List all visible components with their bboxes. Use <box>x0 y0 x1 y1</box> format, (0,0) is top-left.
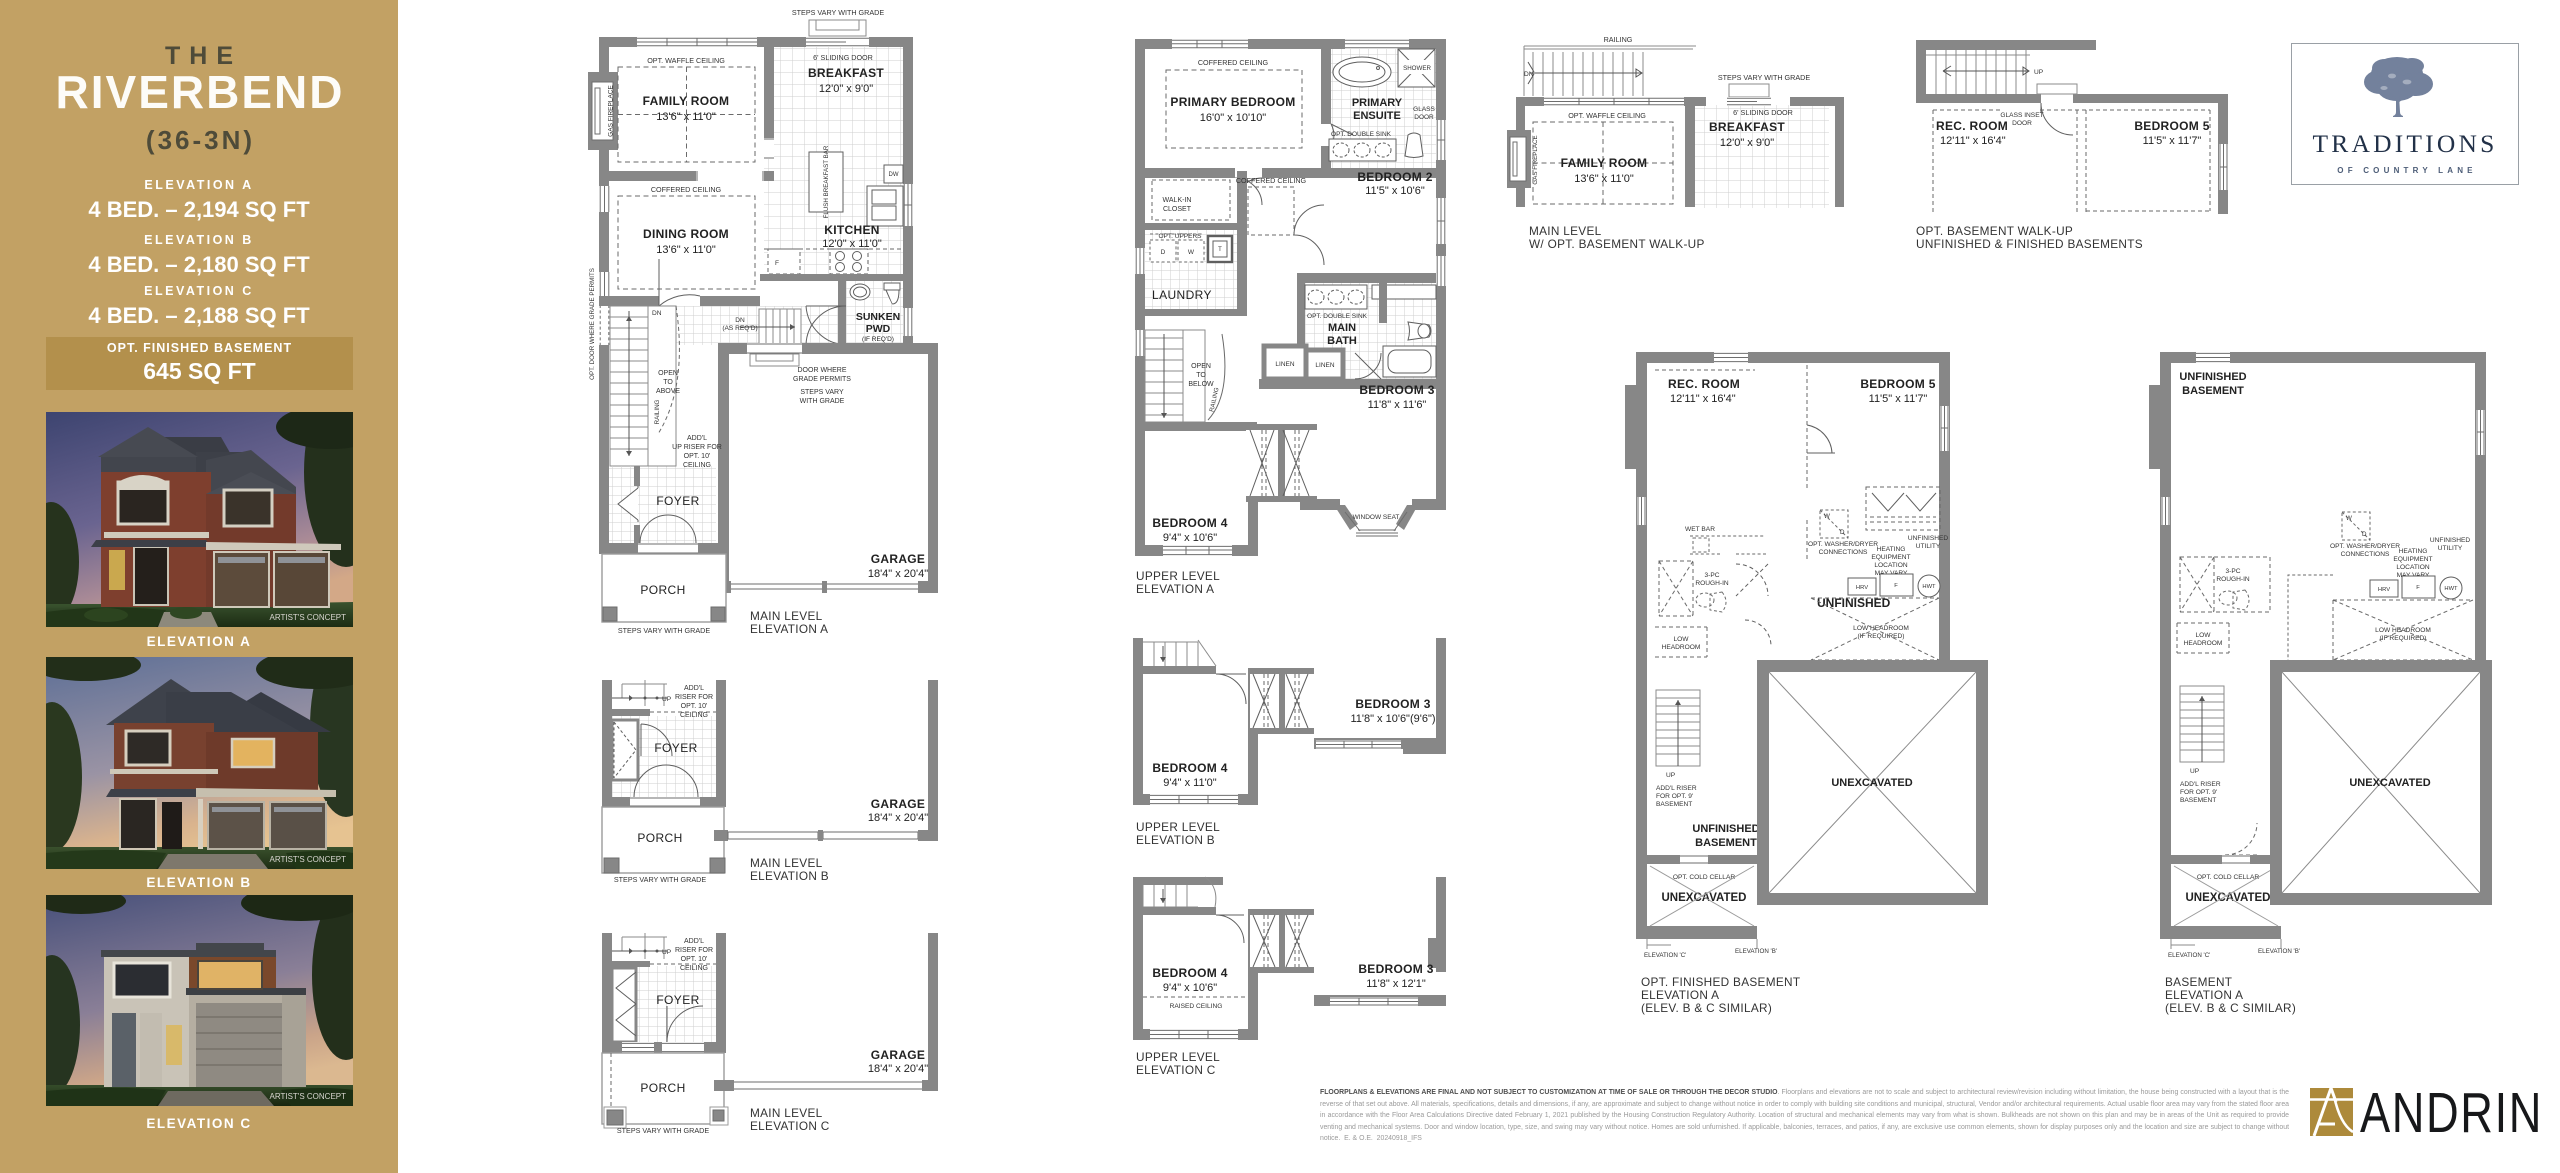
svg-text:FOYER: FOYER <box>656 993 699 1007</box>
svg-text:12'11" x 16'4": 12'11" x 16'4" <box>1940 135 2006 147</box>
svg-text:LINEN: LINEN <box>1275 361 1294 368</box>
svg-text:UNEXCAVATED: UNEXCAVATED <box>1831 777 1912 789</box>
svg-text:TRADITIONS: TRADITIONS <box>2313 129 2498 158</box>
svg-text:REC. ROOM: REC. ROOM <box>1668 377 1740 391</box>
svg-text:ADD'L: ADD'L <box>684 685 704 692</box>
svg-text:ENSUITE: ENSUITE <box>1353 110 1401 122</box>
svg-text:GLASS: GLASS <box>1413 106 1435 113</box>
svg-text:UTILITY: UTILITY <box>1916 543 1941 550</box>
svg-text:CEILING: CEILING <box>680 712 708 719</box>
svg-text:W: W <box>2346 515 2352 522</box>
svg-text:(ELEV. B & C SIMILAR): (ELEV. B & C SIMILAR) <box>2165 1001 2296 1015</box>
svg-text:RAISED CEILING: RAISED CEILING <box>1170 1003 1223 1010</box>
svg-text:(IF REQUIRED): (IF REQUIRED) <box>1858 633 1905 640</box>
svg-text:12'0" x 11'0": 12'0" x 11'0" <box>822 238 882 250</box>
svg-text:9'4" x 10'6": 9'4" x 10'6" <box>1163 982 1217 994</box>
svg-text:LINEN: LINEN <box>1315 362 1334 369</box>
svg-text:UP: UP <box>2034 69 2044 76</box>
svg-text:ELEVATION 'C': ELEVATION 'C' <box>2168 952 2210 959</box>
svg-text:STEPS VARY: STEPS VARY <box>800 389 844 396</box>
svg-text:BATH: BATH <box>1327 335 1357 347</box>
svg-text:(IF REQ'D): (IF REQ'D) <box>862 336 894 343</box>
svg-text:ELEVATION C: ELEVATION C <box>1136 1063 1216 1077</box>
svg-text:LOW: LOW <box>2195 632 2211 639</box>
svg-text:13'6" x 11'0": 13'6" x 11'0" <box>1574 173 1634 185</box>
svg-text:13'6" x 11'0": 13'6" x 11'0" <box>656 244 716 256</box>
svg-text:12'0" x 9'0": 12'0" x 9'0" <box>819 83 873 95</box>
svg-text:BEDROOM 5: BEDROOM 5 <box>2134 119 2209 133</box>
svg-text:11'5" x 10'6": 11'5" x 10'6" <box>1365 185 1425 197</box>
svg-text:T: T <box>1218 247 1222 253</box>
svg-text:MAIN LEVEL: MAIN LEVEL <box>1529 224 1602 238</box>
svg-text:HRV: HRV <box>1856 585 1868 591</box>
svg-text:STEPS VARY WITH GRADE: STEPS VARY WITH GRADE <box>617 1126 709 1135</box>
svg-text:FAMILY ROOM: FAMILY ROOM <box>1561 156 1648 170</box>
svg-text:BEDROOM 4: BEDROOM 4 <box>1152 516 1227 530</box>
svg-text:11'5" x 11'7": 11'5" x 11'7" <box>1869 393 1928 405</box>
svg-text:ADD'L: ADD'L <box>684 938 704 945</box>
svg-text:ELEVATION 'B': ELEVATION 'B' <box>1735 948 1777 955</box>
svg-text:ELEVATION A: ELEVATION A <box>2165 988 2243 1002</box>
svg-text:OPEN: OPEN <box>1191 363 1211 370</box>
svg-text:(AS REQ'D): (AS REQ'D) <box>722 325 757 332</box>
svg-text:6' SLIDING DOOR: 6' SLIDING DOOR <box>813 53 873 62</box>
svg-text:BEDROOM 4: BEDROOM 4 <box>1152 966 1227 980</box>
svg-text:ELEVATION B: ELEVATION B <box>750 869 829 883</box>
svg-text:9'4" x 11'0": 9'4" x 11'0" <box>1163 777 1216 789</box>
svg-text:11'8" x 10'6"(9'6"): 11'8" x 10'6"(9'6") <box>1350 713 1435 725</box>
svg-text:GARAGE: GARAGE <box>871 552 925 566</box>
svg-text:RISER FOR: RISER FOR <box>675 947 713 954</box>
svg-text:11'8" x 12'1": 11'8" x 12'1" <box>1366 978 1426 990</box>
svg-text:CONNECTIONS: CONNECTIONS <box>2341 551 2390 558</box>
svg-text:HEADROOM: HEADROOM <box>1662 644 1701 651</box>
svg-text:OPT. WAFFLE CEILING: OPT. WAFFLE CEILING <box>1568 111 1646 120</box>
svg-text:FLUSH BREAKFAST BAR: FLUSH BREAKFAST BAR <box>823 145 830 218</box>
svg-text:DN: DN <box>652 310 662 317</box>
svg-text:UNFINISHED: UNFINISHED <box>1692 823 1759 835</box>
svg-text:UP: UP <box>662 696 672 703</box>
svg-text:UP: UP <box>662 949 672 956</box>
svg-text:BASEMENT: BASEMENT <box>2180 797 2216 804</box>
svg-text:BEDROOM 2: BEDROOM 2 <box>1357 170 1432 184</box>
svg-text:PORCH: PORCH <box>640 583 685 597</box>
svg-text:OPT. DOOR WHERE GRADE PERMITS: OPT. DOOR WHERE GRADE PERMITS <box>589 268 596 380</box>
svg-text:UNFINISHED: UNFINISHED <box>1908 535 1949 542</box>
svg-text:OPT. FINISHED BASEMENT: OPT. FINISHED BASEMENT <box>1641 975 1800 989</box>
svg-text:OPT. WASHER/DRYER: OPT. WASHER/DRYER <box>2330 543 2400 550</box>
svg-text:18'4" x 20'4": 18'4" x 20'4" <box>868 1063 928 1075</box>
svg-text:LOCATION: LOCATION <box>1874 562 1907 569</box>
svg-text:BASEMENT: BASEMENT <box>2165 975 2232 989</box>
svg-text:CLOSET: CLOSET <box>1163 206 1192 213</box>
svg-text:RISER FOR: RISER FOR <box>675 694 713 701</box>
svg-text:F: F <box>1894 583 1898 589</box>
svg-text:F: F <box>2416 585 2420 591</box>
svg-text:LOW: LOW <box>1673 636 1689 643</box>
svg-text:ELEVATION A: ELEVATION A <box>1641 988 1719 1002</box>
svg-text:BEDROOM 3: BEDROOM 3 <box>1355 697 1430 711</box>
svg-text:18'4" x 20'4": 18'4" x 20'4" <box>868 812 928 824</box>
svg-text:DOOR: DOOR <box>2012 120 2032 127</box>
svg-text:HRV: HRV <box>2378 587 2390 593</box>
svg-text:FAMILY ROOM: FAMILY ROOM <box>643 94 730 108</box>
svg-text:EQUIPMENT: EQUIPMENT <box>2393 556 2432 563</box>
svg-text:3-PC: 3-PC <box>2225 568 2240 575</box>
svg-text:FOR OPT. 9': FOR OPT. 9' <box>1656 793 1693 800</box>
svg-text:LOCATION: LOCATION <box>2396 564 2429 571</box>
svg-text:DN: DN <box>1524 71 1534 78</box>
svg-text:BREAKFAST: BREAKFAST <box>1709 120 1785 134</box>
svg-text:GAS FIREPLACE: GAS FIREPLACE <box>608 85 615 137</box>
svg-text:ADD'L: ADD'L <box>687 435 707 442</box>
svg-text:18'4" x 20'4": 18'4" x 20'4" <box>868 568 928 580</box>
svg-text:COFFERED CEILING: COFFERED CEILING <box>1236 176 1307 185</box>
svg-text:STEPS VARY WITH GRADE: STEPS VARY WITH GRADE <box>1718 73 1810 82</box>
svg-text:KITCHEN: KITCHEN <box>824 223 879 237</box>
svg-text:W: W <box>1824 513 1830 520</box>
svg-text:SUNKEN: SUNKEN <box>856 311 900 323</box>
svg-text:FOR OPT. 9': FOR OPT. 9' <box>2180 789 2217 796</box>
svg-text:BREAKFAST: BREAKFAST <box>808 66 884 80</box>
svg-text:(ELEV. B & C SIMILAR): (ELEV. B & C SIMILAR) <box>1641 1001 1772 1015</box>
svg-text:OPT. 10': OPT. 10' <box>684 453 711 460</box>
svg-text:BEDROOM 3: BEDROOM 3 <box>1358 962 1433 976</box>
svg-text:UNFINISHED: UNFINISHED <box>2179 371 2246 383</box>
svg-text:RAILING: RAILING <box>1209 387 1221 413</box>
svg-text:D: D <box>1161 249 1166 256</box>
svg-text:PORCH: PORCH <box>637 831 682 845</box>
svg-text:UPPER LEVEL: UPPER LEVEL <box>1136 1050 1220 1064</box>
svg-text:PRIMARY: PRIMARY <box>1352 97 1403 109</box>
svg-text:RAILING: RAILING <box>654 399 661 424</box>
svg-text:F: F <box>775 260 779 267</box>
svg-text:OPT. DOUBLE SINK: OPT. DOUBLE SINK <box>1307 313 1368 320</box>
svg-text:UNEXCAVATED: UNEXCAVATED <box>2349 777 2430 789</box>
svg-text:OF COUNTRY LANE: OF COUNTRY LANE <box>2337 166 2476 175</box>
svg-text:HEATING: HEATING <box>2399 548 2428 555</box>
svg-text:ELEVATION 'B': ELEVATION 'B' <box>2258 948 2300 955</box>
svg-text:REC. ROOM: REC. ROOM <box>1936 119 2008 133</box>
svg-text:DW: DW <box>889 172 899 178</box>
svg-text:CEILING: CEILING <box>680 965 708 972</box>
svg-text:PWD: PWD <box>866 323 891 335</box>
svg-text:BEDROOM 5: BEDROOM 5 <box>1860 377 1935 391</box>
svg-text:EQUIPMENT: EQUIPMENT <box>1871 554 1910 561</box>
svg-text:UP: UP <box>2190 768 2200 775</box>
svg-text:OPT. WAFFLE CEILING: OPT. WAFFLE CEILING <box>647 56 725 65</box>
svg-text:OPEN: OPEN <box>658 370 678 377</box>
svg-text:ABOVE: ABOVE <box>656 388 680 395</box>
svg-text:CEILING: CEILING <box>683 462 711 469</box>
svg-text:UNEXCAVATED: UNEXCAVATED <box>1662 892 1747 904</box>
svg-text:ROUGH-IN: ROUGH-IN <box>1695 580 1729 587</box>
svg-text:WALK-IN: WALK-IN <box>1163 197 1192 204</box>
svg-text:OPT. 10': OPT. 10' <box>681 703 708 710</box>
svg-text:MAIN LEVEL: MAIN LEVEL <box>750 856 823 870</box>
svg-text:UNEXCAVATED: UNEXCAVATED <box>2186 892 2271 904</box>
svg-text:ELEVATION A: ELEVATION A <box>1136 582 1214 596</box>
svg-text:DOOR WHERE: DOOR WHERE <box>798 367 847 374</box>
svg-text:DOOR: DOOR <box>1414 114 1434 121</box>
svg-text:OPT. COLD CELLAR: OPT. COLD CELLAR <box>1673 874 1736 881</box>
svg-text:MAIN: MAIN <box>1328 322 1356 334</box>
svg-text:UPPER LEVEL: UPPER LEVEL <box>1136 569 1220 583</box>
svg-text:11'8" x 11'6": 11'8" x 11'6" <box>1368 399 1427 411</box>
svg-text:ELEVATION 'C': ELEVATION 'C' <box>1644 952 1686 959</box>
svg-text:11'5" x 11'7": 11'5" x 11'7" <box>2143 135 2202 147</box>
svg-text:12'0" x 9'0": 12'0" x 9'0" <box>1720 137 1774 149</box>
svg-text:HEATING: HEATING <box>1877 546 1906 553</box>
svg-text:BASEMENT: BASEMENT <box>2182 385 2244 397</box>
svg-text:D: D <box>2362 531 2367 538</box>
svg-text:WITH GRADE: WITH GRADE <box>800 398 845 405</box>
svg-text:HWT: HWT <box>1922 584 1936 590</box>
svg-text:TO: TO <box>663 379 673 386</box>
svg-text:GARAGE: GARAGE <box>871 1048 925 1062</box>
svg-text:BASEMENT: BASEMENT <box>1695 837 1757 849</box>
svg-text:GAS FIREPLACE: GAS FIREPLACE <box>1532 135 1539 184</box>
svg-text:PRIMARY BEDROOM: PRIMARY BEDROOM <box>1170 95 1295 109</box>
svg-text:D: D <box>1840 529 1845 536</box>
svg-text:UP: UP <box>1666 772 1676 779</box>
svg-text:12'11" x 16'4": 12'11" x 16'4" <box>1670 393 1736 405</box>
svg-text:OPT. BASEMENT WALK-UP: OPT. BASEMENT WALK-UP <box>1916 224 2073 238</box>
svg-text:DINING ROOM: DINING ROOM <box>643 227 729 241</box>
svg-text:UTILITY: UTILITY <box>2438 545 2463 552</box>
svg-text:ADD'L RISER: ADD'L RISER <box>1656 785 1697 792</box>
svg-text:ADD'L RISER: ADD'L RISER <box>2180 781 2221 788</box>
svg-text:(IF REQUIRED): (IF REQUIRED) <box>2380 635 2427 642</box>
svg-text:ELEVATION A: ELEVATION A <box>750 622 828 636</box>
svg-text:TO: TO <box>1196 372 1206 379</box>
svg-text:BELOW: BELOW <box>1188 381 1214 388</box>
svg-text:HEADROOM: HEADROOM <box>2184 640 2223 647</box>
svg-text:BEDROOM 3: BEDROOM 3 <box>1359 383 1434 397</box>
svg-text:SHOWER: SHOWER <box>1403 65 1431 72</box>
svg-text:COFFERED CEILING: COFFERED CEILING <box>651 185 722 194</box>
svg-text:UP RISER FOR: UP RISER FOR <box>672 444 722 451</box>
svg-text:ELEVATION C: ELEVATION C <box>750 1119 830 1133</box>
svg-text:OPT. DOUBLE SINK: OPT. DOUBLE SINK <box>1331 131 1392 138</box>
svg-text:FOYER: FOYER <box>656 494 699 508</box>
svg-text:MAIN LEVEL: MAIN LEVEL <box>750 1106 823 1120</box>
svg-text:LOW HEADROOM: LOW HEADROOM <box>2375 627 2431 634</box>
svg-text:16'0" x 10'10": 16'0" x 10'10" <box>1200 112 1267 124</box>
svg-text:BEDROOM 4: BEDROOM 4 <box>1152 761 1227 775</box>
svg-text:OPT. COLD CELLAR: OPT. COLD CELLAR <box>2197 874 2260 881</box>
svg-text:UPPER LEVEL: UPPER LEVEL <box>1136 820 1220 834</box>
svg-text:3-PC: 3-PC <box>1704 572 1719 579</box>
svg-text:OPT. WASHER/DRYER: OPT. WASHER/DRYER <box>1808 541 1878 548</box>
svg-text:WINDOW SEAT: WINDOW SEAT <box>1353 514 1400 521</box>
svg-text:STEPS VARY WITH GRADE: STEPS VARY WITH GRADE <box>618 626 710 635</box>
svg-text:CONNECTIONS: CONNECTIONS <box>1819 549 1868 556</box>
svg-text:GARAGE: GARAGE <box>871 797 925 811</box>
svg-text:HWT: HWT <box>2444 586 2458 592</box>
svg-text:UNFINISHED: UNFINISHED <box>2430 537 2471 544</box>
svg-text:RAILING: RAILING <box>1604 35 1633 44</box>
svg-text:W/ OPT. BASEMENT WALK-UP: W/ OPT. BASEMENT WALK-UP <box>1529 237 1705 251</box>
svg-text:ANDRIN: ANDRIN <box>2360 1086 2543 1138</box>
svg-text:LAUNDRY: LAUNDRY <box>1152 288 1212 302</box>
svg-text:STEPS VARY WITH GRADE: STEPS VARY WITH GRADE <box>614 875 706 884</box>
svg-text:ROUGH-IN: ROUGH-IN <box>2216 576 2250 583</box>
svg-text:ELEVATION B: ELEVATION B <box>1136 833 1215 847</box>
svg-text:GRADE PERMITS: GRADE PERMITS <box>793 376 851 383</box>
svg-text:DN: DN <box>735 317 745 324</box>
svg-text:GLASS INSET: GLASS INSET <box>2000 112 2043 119</box>
svg-text:MAIN LEVEL: MAIN LEVEL <box>750 609 823 623</box>
svg-text:STEPS VARY WITH GRADE: STEPS VARY WITH GRADE <box>792 8 884 17</box>
svg-text:W: W <box>1188 249 1195 256</box>
svg-text:13'6" x 11'0": 13'6" x 11'0" <box>656 111 716 123</box>
svg-text:UNFINISHED & FINISHED BASEMENT: UNFINISHED & FINISHED BASEMENTS <box>1916 237 2143 251</box>
svg-text:9'4" x 10'6": 9'4" x 10'6" <box>1163 532 1217 544</box>
svg-text:COFFERED CEILING: COFFERED CEILING <box>1198 58 1269 67</box>
svg-text:OPT. 10': OPT. 10' <box>681 956 708 963</box>
svg-text:PORCH: PORCH <box>640 1081 685 1095</box>
svg-text:6' SLIDING DOOR: 6' SLIDING DOOR <box>1733 108 1793 117</box>
svg-text:WET BAR: WET BAR <box>1685 526 1715 533</box>
svg-text:FOYER: FOYER <box>654 741 697 755</box>
svg-text:BASEMENT: BASEMENT <box>1656 801 1692 808</box>
